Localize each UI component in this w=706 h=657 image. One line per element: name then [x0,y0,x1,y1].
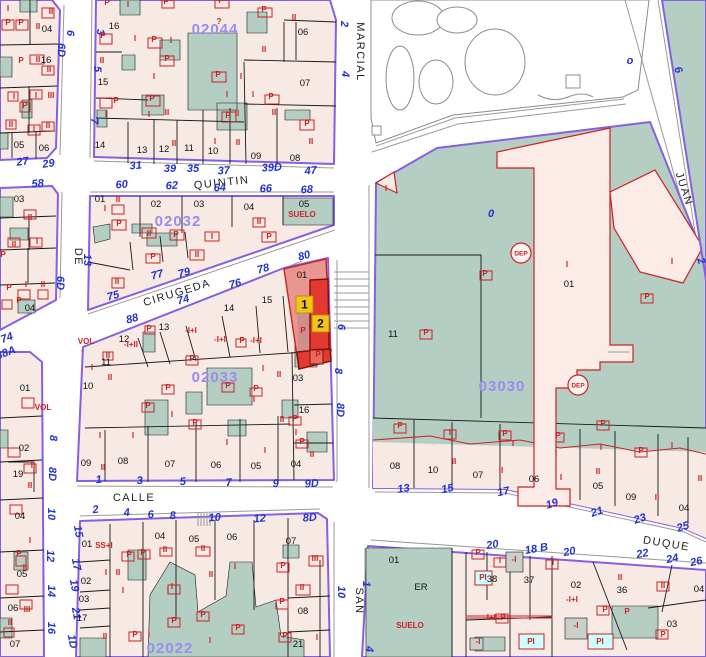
floor-label-pi: PI [479,573,487,582]
floor-label-ii: II [28,213,32,222]
floor-label-i: I [105,110,107,119]
floor-label-p: P [140,548,146,557]
floor-label-p: P [100,31,106,40]
parcel-number-11[interactable]: 11 [184,143,194,154]
floor-label-p: P [116,219,122,228]
floor-label-ii: II [300,583,304,592]
floor-label-ii: II [698,474,702,483]
street-number-0: 0 [488,208,495,220]
floor-label-p: P [165,383,171,392]
floor-label-pi: PI [527,637,535,646]
parcel-number-07[interactable]: 07 [10,639,21,650]
dep-marker-label: DEP [571,383,585,390]
result-marker-label-1[interactable]: 1 [301,298,308,312]
parcel-number-10[interactable]: 10 [428,465,439,476]
floor-label-i: I [264,446,266,455]
parcel-number-15[interactable]: 15 [262,295,273,306]
street-number-8d: 8D [46,467,58,481]
parcel-number-01[interactable]: 01 [297,270,308,281]
parcel-number-15[interactable]: 15 [98,77,109,88]
floor-label-i: I [316,633,318,642]
floor-label-i: I [132,431,134,440]
floor-label-ii: II [292,13,296,22]
floor-label-p: P [18,56,24,65]
floor-label-i: I [211,232,213,241]
parcel-number-19[interactable]: 19 [13,469,24,480]
floor-label-p: P [215,70,221,79]
floor-label-ss-i: SS+I [95,541,113,550]
street-number-60: 60 [115,178,129,191]
street-number-16: 16 [45,622,57,635]
street-number-6d: 6D [54,276,66,290]
street-number-4: 4 [363,645,375,652]
floor-label-p: P [6,283,12,292]
parcel-number-14[interactable]: 14 [224,303,235,314]
street-number-37: 37 [217,165,231,178]
parcel-number-04[interactable]: 04 [15,511,26,522]
floor-label-ii: II [36,55,40,64]
floor-label-ii: II [23,563,27,572]
street-number-31: 31 [129,160,142,173]
floor-label-ii: II [147,229,151,238]
street-number-47: 47 [303,164,318,177]
floor-label-ii: II [46,121,50,130]
street-number-1d: 1D [65,634,79,650]
floor-label-i: I [127,0,129,9]
parcel-number-10[interactable]: 10 [83,381,94,392]
floor-label-p: P [149,94,155,103]
floor-label-p: P [475,548,481,557]
street-number-10: 10 [335,586,347,599]
floor-label-p: P [315,350,321,359]
parcel-number-09[interactable]: 09 [626,492,637,503]
floor-label-i: I [253,395,255,404]
floor-label-i: I [170,36,172,45]
tree-blob [392,1,444,35]
parcel-number-06[interactable]: 06 [211,460,222,471]
floor-label-ii: II [28,481,32,490]
street-number-9d: 9D [304,477,319,490]
floor-label-p: P [0,250,6,259]
floor-label-i-i: -I+I [185,326,197,335]
parcel-number-13[interactable]: 13 [137,145,148,156]
floor-label-i: I [214,137,216,146]
street-number-6: 6 [335,324,347,331]
floor-label-ii: II [108,373,112,382]
floor-label-iii: III [24,605,31,614]
floor-label-ii: II [262,45,266,54]
floor-label-ii: II [31,461,35,470]
parcel-number-01[interactable]: 01 [389,555,400,566]
tree-blob [419,60,453,104]
floor-label-i: -I [476,637,481,646]
floor-label-i: I [148,110,150,119]
floor-label-p: P [600,419,606,428]
floor-label-pi: PI [596,637,604,646]
floor-label-ii: II [277,370,281,379]
floor-label-i: I [33,125,35,134]
parcel-number-02[interactable]: 02 [19,443,30,454]
floor-label-i: I [171,410,173,419]
floor-label-iii: III [312,554,319,563]
parcel-number-05[interactable]: 05 [299,199,310,210]
floor-label-p: P [555,431,561,440]
floor-label-p: P [482,269,488,278]
tree-blob [437,7,477,33]
floor-label-p: P [126,550,132,559]
floor-label-ii: II [618,573,622,582]
parcel-number-01[interactable]: 01 [564,279,575,290]
parcel-number-14[interactable]: 14 [95,140,106,151]
floor-label-p: P [235,623,241,632]
floor-label-ii: II [116,568,120,577]
parcel-number-03[interactable]: 03 [194,199,205,210]
floor-label-p: P [150,252,156,261]
floor-label-p: P [192,418,198,427]
floor-label-p: P [146,324,152,333]
parcel-number-36[interactable]: 36 [617,585,628,596]
street-number-3: 3 [136,475,143,487]
floor-label-i: -I [512,555,517,564]
floor-label-p: P [602,605,608,614]
cadastral-map[interactable]: DEPDEP MARCIALQUINTINCIRUGEDACALLEDESANJ… [0,0,706,657]
parcel-number-05[interactable]: 05 [14,140,25,151]
floor-label-p: P [104,0,110,7]
parcel-number-10[interactable]: 10 [208,146,219,157]
floor-label-ii: II [163,545,167,554]
parcel-number-12[interactable]: 12 [159,144,170,155]
parcel-number-09[interactable]: 09 [81,458,92,469]
floor-label-ii: II [36,22,40,31]
floor-label-p: P [282,631,288,640]
floor-label-ii: II [12,240,16,249]
floor-label-ii: II [172,139,176,148]
floor-label-p: P [660,630,666,639]
floor-label-p: P [292,414,298,423]
floor-label-i: I [148,630,150,639]
parcel-number-02[interactable]: 02 [571,580,582,591]
floor-label-p: P [18,18,24,27]
floor-label-i: I [566,260,568,269]
floor-label-ii: II [106,351,110,360]
parcel-number-03[interactable]: 03 [79,594,90,605]
block-02022[interactable] [76,513,330,657]
floor-label-p: P [173,230,179,239]
park-structure [566,75,580,88]
floor-label-i: I [226,438,228,447]
floor-label-p: P [225,381,231,390]
floor-label-i: I [262,364,264,373]
floor-label-ii: II [195,250,199,259]
street-number-66: 66 [259,183,273,196]
floor-label-p: P [638,446,644,455]
floor-label-i: I [512,439,514,448]
parcel-number-04[interactable]: 04 [244,202,255,213]
floor-label-i-i: -I+I [214,335,226,344]
block-code-02033[interactable]: 02033 [192,369,239,386]
street-number-12: 12 [253,513,266,526]
floor-label-p: P [266,232,272,241]
floor-label-i: I [209,636,211,645]
parcel-number-01[interactable]: 01 [82,539,93,550]
tree-blob [386,46,414,110]
street-number-13: 13 [397,482,411,496]
parcel-number-02[interactable]: 02 [81,576,92,587]
floor-label-p: P [397,421,403,430]
floor-label-suelo: SUELO [288,210,316,219]
floor-label-i: I [171,582,173,591]
street-number-2: 2 [338,20,350,27]
parcel-number-16[interactable]: 16 [109,21,120,32]
street-number-6: 6 [64,30,76,37]
parcel-number-04[interactable]: 04 [25,303,36,314]
floor-label-i: I [13,92,15,101]
floor-label-p: P [218,0,224,5]
floor-label-i: I [600,443,602,452]
street-number-22: 22 [634,547,649,561]
floor-label-i-i: -I+I [566,595,578,604]
floor-label-i: -I [574,621,579,630]
floor-label-p: P [171,616,177,625]
tree-blob [465,29,525,95]
street-number-5: 5 [91,66,103,73]
floor-label-ii: II [310,450,314,459]
street-number-10: 10 [208,511,222,524]
street-number-o: o [627,55,634,67]
floor-label-i-i: -I+I [484,613,496,622]
block-code-02022[interactable]: 02022 [147,640,194,657]
parcel-number-04[interactable]: 04 [679,503,690,514]
floor-label-ii: II [9,120,13,129]
floor-label-ii: II [101,463,105,472]
street-number-1: 1 [95,474,102,486]
floor-label-ii: II [272,108,276,117]
result-marker-label-2[interactable]: 2 [317,317,324,331]
floor-label-p: P [164,54,170,63]
street-number-14: 14 [45,585,57,597]
cadastral-map-stage: DEPDEP MARCIALQUINTINCIRUGEDACALLEDESANJ… [0,0,706,657]
parcel-number-06[interactable]: 06 [39,143,50,154]
street-number-58: 58 [31,177,45,190]
parcel-number-06[interactable]: 06 [529,474,540,485]
floor-label-p: P [261,5,267,14]
floor-label-ii: II [655,493,659,502]
block-code-02032[interactable]: 02032 [155,213,202,230]
parcel-number-03[interactable]: 03 [667,619,678,630]
street-name-calle: CALLE [113,492,155,504]
floor-label-p: P [5,18,11,27]
street-number-68: 68 [300,184,314,197]
street-number-29: 29 [41,157,57,171]
floor-label-ii: II [280,415,284,424]
parcel-number-17[interactable]: 17 [77,613,88,624]
parcel-number-01[interactable]: 01 [20,383,31,394]
floor-label-vol: VOL [78,337,95,346]
parcel-number-16[interactable]: 16 [299,405,310,416]
floor-label-i: I [552,558,554,567]
street-number-8d: 8D [334,403,346,417]
floor-label-i: I [560,473,562,482]
floor-label-i: I [295,428,297,437]
street-number-8d: 8D [302,511,317,524]
floor-label-ii: II [452,457,456,466]
street-number-4: 4 [122,507,130,520]
floor-label-iii: III [48,91,55,100]
street-number-62: 62 [165,180,178,193]
floor-label-p: P [239,336,245,345]
floor-label-p: P [16,549,22,558]
floor-label-p: P [113,96,119,105]
floor-label-ii: II [47,65,51,74]
floor-label-p: P [16,296,22,305]
street-number-1: 1 [360,581,372,587]
street-name-marcial: MARCIAL [354,22,366,81]
street-name-san: SAN [353,587,365,614]
floor-label-i: I [105,568,107,577]
parcel-number-37[interactable]: 37 [524,575,535,586]
floor-label-i: I [385,184,387,193]
parcel-number-07[interactable]: 07 [286,536,297,547]
parcel-number-04[interactable]: 04 [155,531,166,542]
street-number-7: 7 [88,118,100,125]
parcel-number-03[interactable]: 03 [14,194,25,205]
floor-label-i: I [252,90,254,99]
floor-label-ii: II [309,137,313,146]
floor-label-p: P [268,92,274,101]
floor-label-i: I [29,536,31,545]
park-structure [372,126,381,135]
parcel-number-06[interactable]: 06 [298,27,309,38]
floor-label-p: P [22,101,28,110]
floor-label-p: P [253,384,259,393]
parcel-number-03[interactable]: 03 [293,373,304,384]
floor-label-p: P [280,561,286,570]
floor-label-p: P [279,597,285,606]
parcel-number-07[interactable]: 07 [300,78,311,89]
floor-label-p: P [132,630,138,639]
floor-label-ii: II [116,195,120,204]
floor-label-ii: II [49,7,53,16]
floor-label-i: I [226,90,228,99]
block-left-bottom[interactable] [0,352,44,657]
floor-label-p: P [500,613,506,622]
floor-label-i: I [240,72,242,81]
street-number-6d: 6D [55,43,67,57]
floor-label-ii: II [103,632,107,641]
floor-label-ii: II [235,109,239,118]
floor-label-ii: II [165,108,169,117]
floor-label-ii: II [115,277,119,286]
street-number-8: 8 [332,368,344,375]
floor-label-p: P [644,292,650,301]
floor-label-x: ? [217,17,222,26]
street-number-35: 35 [187,163,200,175]
floor-label-p: P [163,0,169,6]
parcel-number-07[interactable]: 07 [165,459,176,470]
parcel-number-04[interactable]: 04 [291,459,302,470]
floor-label-p: P [502,429,508,438]
parcel-number-38[interactable]: 38 [487,574,498,585]
street-number-39: 39 [164,163,177,175]
floor-label-p: P [151,35,157,44]
floor-label-i: I [499,556,501,565]
parcel-number-06[interactable]: 06 [227,532,238,543]
street-number-64: 64 [213,182,226,195]
floor-label-ii: II [499,466,503,475]
floor-label-p: P [300,326,306,335]
floor-label-i: I [122,586,124,595]
parcel-number-05[interactable]: 05 [593,481,604,492]
floor-label-ii: II [209,570,213,579]
floor-label-suelo: SUELO [396,621,424,630]
street-number-10: 10 [45,508,57,521]
parcel-number-05[interactable]: 05 [189,534,200,545]
floor-label-p: P [189,354,195,363]
parcel-number-02[interactable]: 02 [151,199,162,210]
parcel-number-08[interactable]: 08 [290,153,301,164]
floor-label-p: P [423,328,429,337]
floor-label-i-i: -I+I [250,336,262,345]
dep-marker-label: DEP [514,251,528,258]
floor-label-i: I [25,280,27,289]
floor-label-p: P [304,119,310,128]
floor-label-p: P [145,401,151,410]
parcel-number-04[interactable]: 04 [694,584,705,595]
floor-label-i: I [449,428,451,437]
floor-label-i: I [167,586,169,595]
parcel-number-05[interactable]: 05 [251,461,262,472]
floor-label-ii: II [100,56,104,65]
floor-label-i: I [104,204,106,213]
floor-label-i: I [555,449,557,458]
floor-label-i: I [99,431,101,440]
street-number-12: 12 [44,550,56,562]
floor-label-ii: II [41,280,45,289]
floor-label-i: I [671,441,673,450]
parcel-number-04[interactable]: 04 [42,24,53,35]
floor-label-ii: II [201,544,205,553]
parcel-number-08[interactable]: 08 [298,606,309,617]
floor-label-i: I [153,72,155,81]
parcel-number-09[interactable]: 09 [251,151,262,162]
highlight-parcel-inner [310,279,329,350]
floor-label-i: I [671,257,673,266]
floor-label-p: P [200,610,206,619]
parcel-number-er[interactable]: ER [414,582,427,593]
floor-label-ii: II [236,138,240,147]
floor-label-ii: II [8,618,12,627]
street-number-39d: 39D [261,161,282,174]
parcel-number-07[interactable]: 07 [473,470,484,481]
floor-label-i: I [91,363,93,372]
parcel-number-08[interactable]: 08 [118,456,129,467]
floor-label-ii: II [596,467,600,476]
floor-label-i-ii: -I+II [124,340,138,349]
parcel-number-21[interactable]: 21 [293,639,304,650]
parcel-number-11[interactable]: 11 [388,329,398,340]
parcel-number-13[interactable]: 13 [159,322,170,333]
floor-label-i: I [7,4,9,13]
floor-label-i: I [35,91,37,100]
parcel-number-08[interactable]: 08 [390,461,401,472]
street-number-8: 8 [47,435,59,442]
parcel-number-06[interactable]: 06 [8,603,19,614]
floor-label-p: P [299,437,305,446]
block-code-03030[interactable]: 03030 [479,378,526,395]
floor-label-p: P [225,111,231,120]
street-number-27: 27 [15,155,31,169]
block-code-02044[interactable]: 02044 [192,21,239,38]
